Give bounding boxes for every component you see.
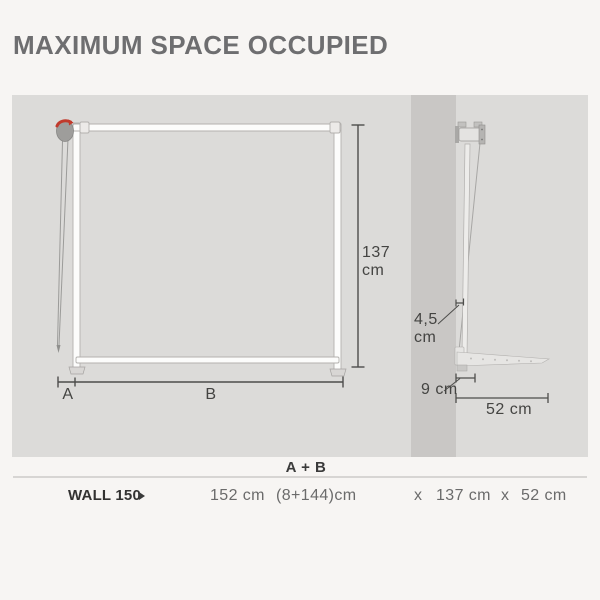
width-breakdown-value: (8+144)cm	[276, 487, 357, 505]
arrow-right-icon[interactable]	[139, 492, 145, 500]
model-name[interactable]: WALL 150	[68, 487, 141, 504]
height-value-cell: 137 cm	[436, 487, 491, 505]
wall-bracket	[455, 122, 485, 144]
depth-value-cell: 52 cm	[521, 487, 567, 505]
page-title: MAXIMUM SPACE OCCUPIED	[13, 30, 388, 61]
width-a-label: A	[58, 386, 78, 404]
table-divider	[13, 476, 587, 478]
wall-gap-value: 4,5	[414, 311, 438, 329]
frame-left-connector	[80, 122, 89, 133]
floor-foot	[455, 347, 549, 371]
side-pole	[462, 144, 470, 355]
frame-left-pole	[73, 123, 80, 368]
width-total-value: 152 cm	[210, 487, 265, 505]
multiply-sign-2: x	[501, 487, 509, 505]
cable-lines	[58, 139, 69, 345]
frame-right-connector	[330, 122, 340, 133]
screen: MAXIMUM SPACE OCCUPIED	[0, 0, 600, 600]
bracket-depth-label: 9 cm	[421, 381, 458, 399]
frame-top-bar	[73, 124, 341, 131]
wall-gap-label: 4,5 cm	[414, 311, 438, 347]
pulley-icon	[57, 120, 74, 142]
height-unit: cm	[362, 262, 390, 280]
right-foot	[330, 369, 346, 376]
wall-gap-marker	[438, 299, 464, 325]
frame-right-pole	[334, 123, 341, 370]
spec-table-row: WALL 150 152 cm (8+144)cm x 137 cm x 52 …	[0, 487, 600, 507]
frame	[73, 122, 341, 370]
left-foot	[69, 367, 85, 374]
cable-end-arrow	[57, 345, 61, 353]
depth-label: 52 cm	[486, 401, 532, 419]
height-value: 137	[362, 244, 390, 262]
multiply-sign-1: x	[414, 487, 422, 505]
table-header-formula: A + B	[0, 459, 600, 476]
wall-gap-unit: cm	[414, 329, 438, 347]
height-dimension-label: 137 cm	[362, 244, 390, 280]
width-b-label: B	[201, 386, 221, 404]
frame-bottom-bar	[76, 357, 339, 363]
frame-feet	[69, 367, 346, 376]
